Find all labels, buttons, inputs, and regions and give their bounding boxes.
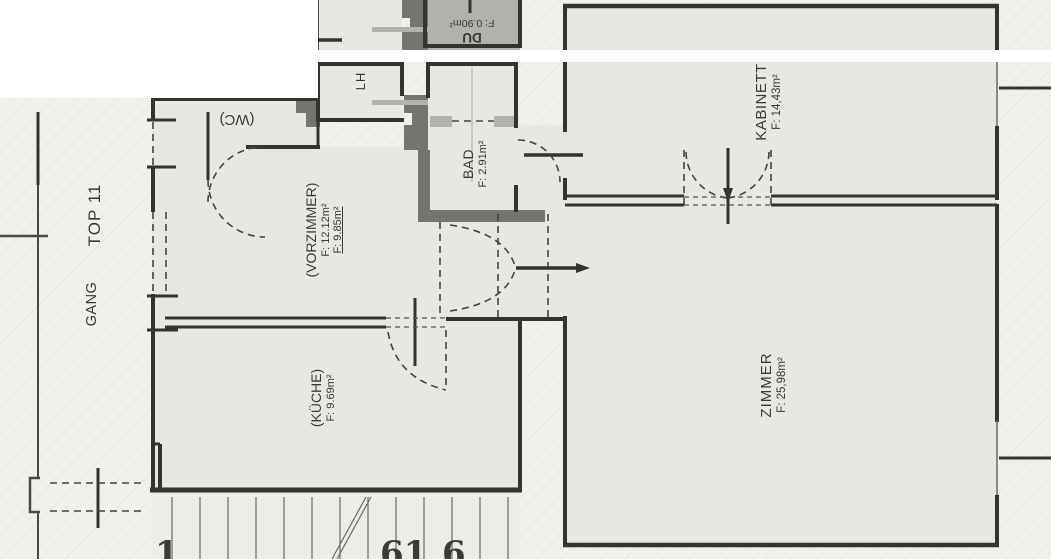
stair-number-middle: 61 bbox=[380, 534, 427, 559]
vorzimmer-name: (VORZIMMER) bbox=[303, 164, 320, 296]
zimmer-name: ZIMMER bbox=[758, 329, 776, 441]
stair-number-right: 6 bbox=[442, 534, 466, 559]
floor-plan-page: F: 1.38m² TOP 11 GANG (WC) DU F: 0.90m² … bbox=[0, 0, 1051, 559]
vorzimmer-area1: F: 12.12m² bbox=[320, 164, 333, 296]
room-label-zimmer: ZIMMER F: 25,98m² bbox=[758, 329, 798, 441]
corridor-label: GANG bbox=[84, 264, 102, 344]
room-label-wc: (WC) bbox=[201, 108, 273, 128]
room-label-bad: BAD F: 2.91m² bbox=[460, 118, 496, 210]
bad-name: BAD bbox=[460, 118, 477, 210]
floor-plan-drawing: F: 1.38m² bbox=[0, 0, 1051, 559]
bad-area: F: 2.91m² bbox=[477, 118, 490, 210]
vorzimmer-area2: F: 9.85m² bbox=[332, 164, 345, 296]
room-label-du: DU F: 0.90m² bbox=[428, 7, 516, 45]
room-label-lh: LH bbox=[353, 58, 371, 104]
du-name: DU bbox=[428, 29, 516, 45]
zimmer-area: F: 25,98m² bbox=[776, 329, 790, 441]
unit-label: TOP 11 bbox=[85, 160, 105, 270]
kabinett-area: F: 14,43m² bbox=[771, 46, 785, 158]
du-area: F: 0.90m² bbox=[428, 17, 516, 29]
kabinett-name: KABINETT bbox=[753, 46, 771, 158]
stair-number-left: 1 bbox=[155, 534, 179, 559]
room-label-kabinett: KABINETT F: 14,43m² bbox=[753, 46, 791, 158]
kueche-area: F: 9.69m² bbox=[325, 342, 338, 454]
room-label-kueche: (KÜCHE) F: 9.69m² bbox=[308, 342, 346, 454]
room-label-vorzimmer: (VORZIMMER) F: 12.12m² F: 9.85m² bbox=[303, 164, 357, 296]
kueche-name: (KÜCHE) bbox=[308, 342, 325, 454]
